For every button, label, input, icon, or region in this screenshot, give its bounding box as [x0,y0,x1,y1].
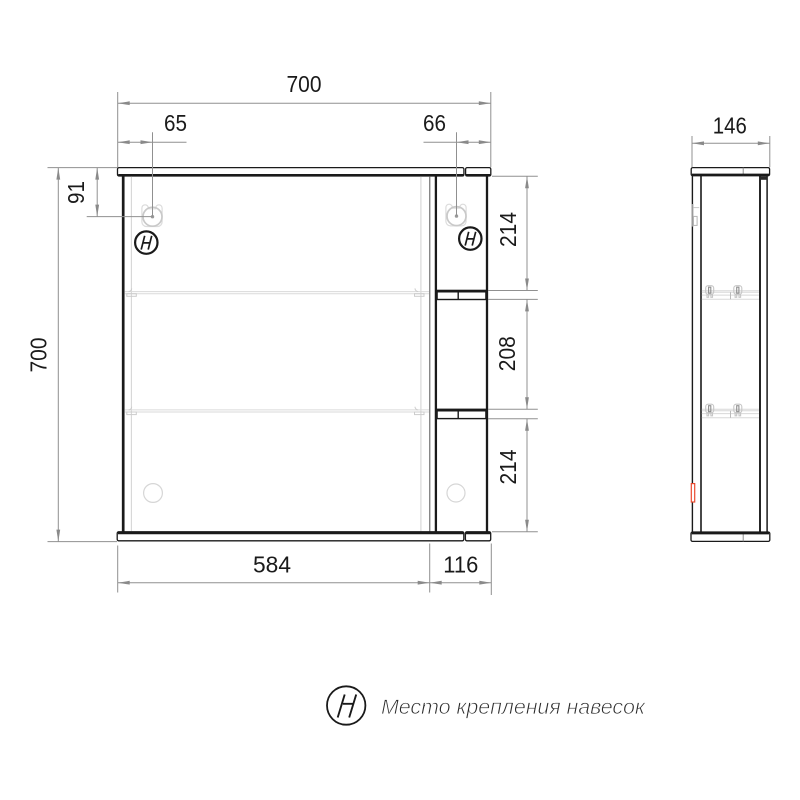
svg-text:146: 146 [713,113,747,139]
svg-text:Место крепления навесок: Место крепления навесок [381,695,646,719]
svg-text:214: 214 [495,449,521,484]
svg-text:214: 214 [495,212,521,247]
svg-text:208: 208 [494,336,520,371]
svg-text:700: 700 [26,338,52,373]
svg-text:700: 700 [287,71,322,97]
svg-text:66: 66 [423,110,446,136]
svg-text:116: 116 [443,552,478,578]
svg-text:91: 91 [63,181,89,204]
svg-text:65: 65 [164,110,187,136]
svg-text:584: 584 [253,552,291,578]
